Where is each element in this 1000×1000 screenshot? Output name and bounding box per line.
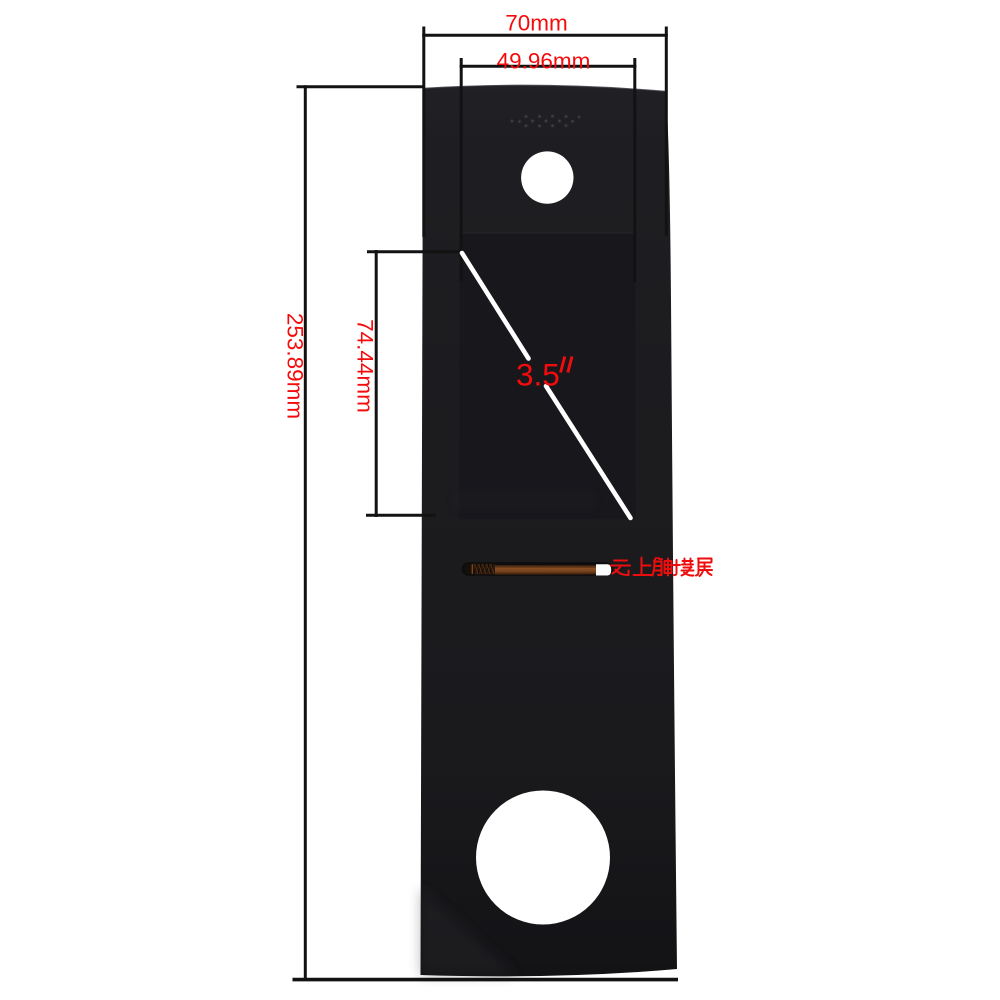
svg-text:74.44mm: 74.44mm (353, 319, 378, 413)
svg-text:70mm: 70mm (505, 11, 568, 36)
svg-text:253.89mm: 253.89mm (283, 313, 308, 419)
svg-text:49.96mm: 49.96mm (497, 48, 591, 73)
svg-text:3.5: 3.5 (516, 357, 560, 393)
